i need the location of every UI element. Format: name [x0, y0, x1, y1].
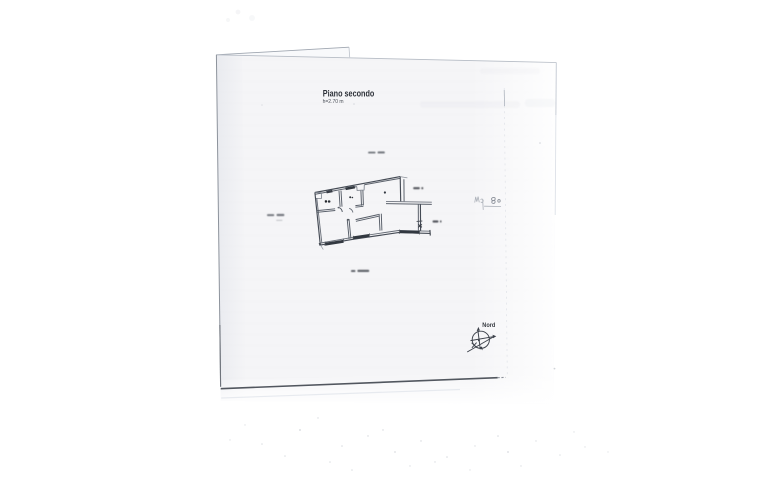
svg-text:Nord: Nord — [482, 322, 495, 329]
svg-text:h=2.70 m: h=2.70 m — [323, 99, 344, 105]
svg-text:Piano secondo: Piano secondo — [323, 88, 375, 99]
